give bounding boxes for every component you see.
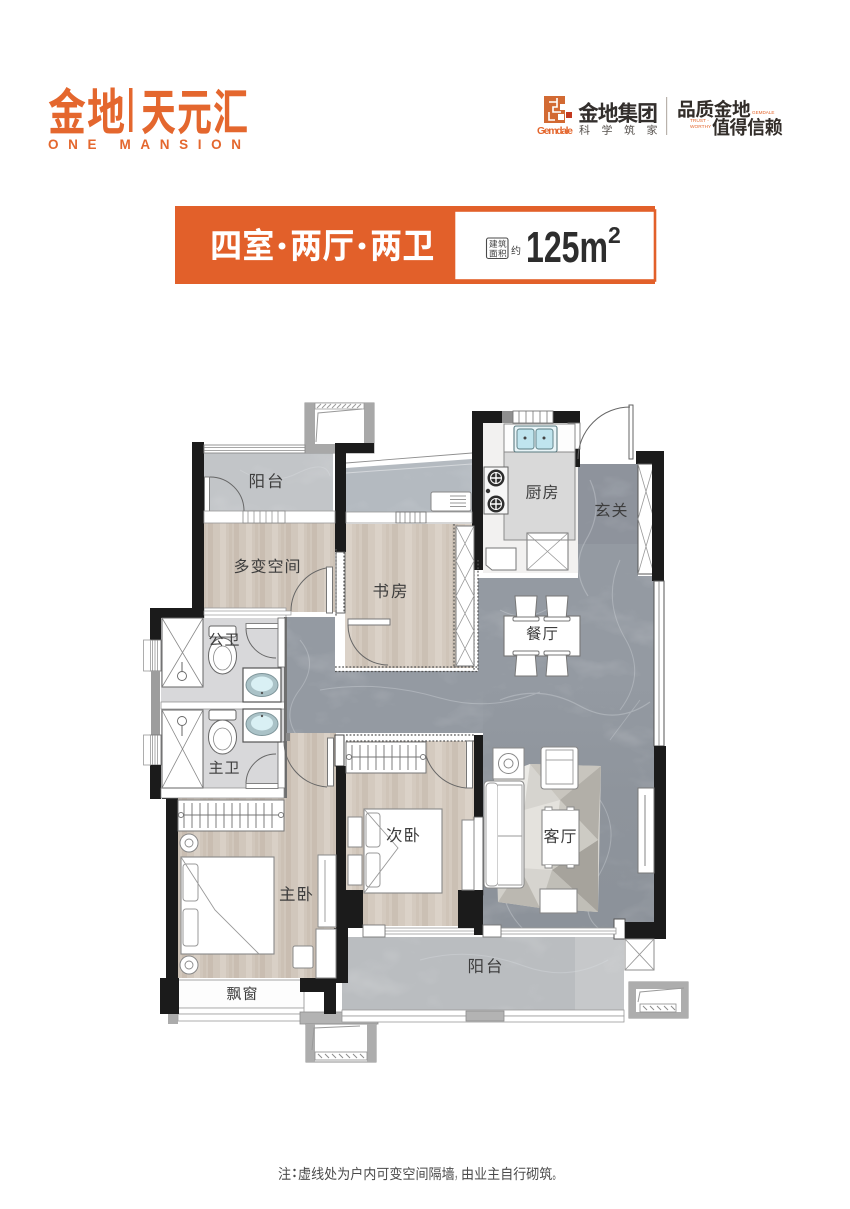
svg-text:ONE MANSION: ONE MANSION xyxy=(48,137,241,152)
svg-text:GEMDALE: GEMDALE xyxy=(752,110,774,115)
svg-text:2: 2 xyxy=(608,222,621,248)
svg-text:125m: 125m xyxy=(526,223,608,272)
svg-text:WORTHY: WORTHY xyxy=(690,124,712,130)
svg-text:TRUST -: TRUST - xyxy=(690,118,709,124)
svg-text:Gemdale: Gemdale xyxy=(537,125,573,137)
